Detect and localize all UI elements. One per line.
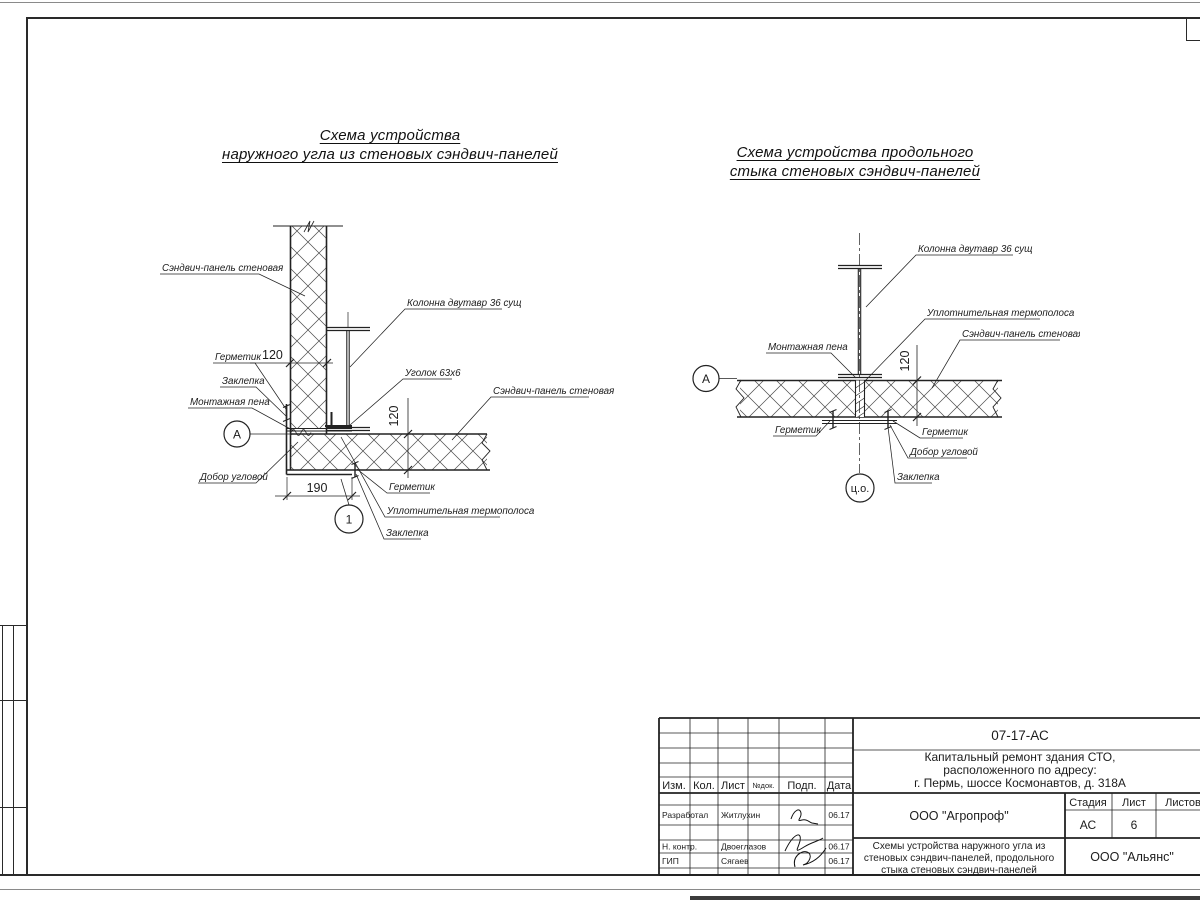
thermal-label: Уплотнительная термополоса [926,308,1075,319]
col-ndok: №док. [753,781,775,790]
thermal-label: Уплотнительная термополоса [386,506,535,517]
window-bottom-strip [690,896,1200,900]
title-block: Изм. Кол. Лист №док. Подп. Дата Разработ… [655,714,1200,880]
right-title-line2: стыка стеновых сэндвич-панелей [730,163,980,180]
org-design: ООО "Агропроф" [909,809,1008,823]
corner-trim-label: Добор угловой [909,447,978,458]
col-data: Дата [827,780,852,792]
wall-panel-vertical [273,221,343,470]
node-marker-a-text: А [233,428,241,442]
project-line3: г. Пермь, шоссе Космонавтов, д. 318А [914,776,1126,790]
row-role: Разработал [662,810,708,820]
signatures [785,810,826,867]
attachment-column-divider [0,700,26,701]
org-customer: ООО "Альянс" [1090,850,1174,864]
col-izm: Изм. [662,780,686,792]
left-diagram-title: Схема устройства наружного угла из стено… [140,126,640,164]
angle-label: Уголок 63х6 [404,368,461,379]
right-title-line1: Схема устройства продольного [737,144,974,161]
panel-label: Сэндвич-панель стеновая [962,329,1080,340]
corner-trim-label: Добор угловой [199,472,268,483]
stage-header: Стадия [1069,797,1107,809]
sealant-left-label: Герметик [775,425,821,436]
dim-text: 120 [387,406,401,427]
sealant-right-label: Герметик [922,427,968,438]
drawing-sheet: Схема устройства наружного угла из стено… [0,0,1200,900]
rivet-label: Заклепка [897,472,940,483]
row-name: Двоеглазов [721,842,767,852]
wall-panel [736,380,1002,417]
frame-top [26,17,1200,19]
row-name: Сягаев [721,856,749,866]
column-label: Колонна двутавр 36 сущ [407,298,521,309]
node-marker-a-text: А [702,372,710,386]
sheet-outer-top-edge [0,2,1200,3]
row-date: 06.17 [828,842,850,852]
foam-label: Монтажная пена [190,397,270,408]
panel-joint [856,381,865,418]
dim-text: 120 [898,351,912,372]
row-date: 06.17 [828,810,850,820]
top-right-corner-box [1186,18,1200,41]
sheet-outer-bottom-edge [0,889,1200,890]
center-axis-marker: ц.о. [846,474,874,502]
attachment-column-line [13,625,14,875]
rivet-label: Заклепка [222,376,265,387]
sealant2-label: Герметик [389,482,435,493]
sheet-name-line1: Схемы устройства наружного угла из [873,841,1046,852]
node-marker-a: А [693,366,719,392]
sheet-name-line2: стеновых сэндвич-панелей, продольного [864,853,1055,864]
frame-left [26,17,28,876]
col-kol: Кол. [693,780,715,792]
foam-label: Монтажная пена [768,342,848,353]
dimension-190: 190 [275,477,360,500]
right-diagram-title: Схема устройства продольного стыка стено… [655,143,1055,181]
detail-marker-1: 1 [335,505,363,533]
left-title-line1: Схема устройства [320,127,461,144]
attachment-column-divider [0,807,26,808]
rivet2-label: Заклепка [386,528,429,539]
left-title-line2: наружного угла из стеновых сэндвич-панел… [222,146,558,163]
sheets-header: Листов [1165,797,1200,809]
panel-label: Сэндвич-панель стеновая [162,263,284,274]
panel-right-label: Сэндвич-панель стеновая [493,386,615,397]
doc-number: 07-17-АС [991,728,1049,743]
sheet-name-line3: стыка стеновых сэндвич-панелей [881,865,1037,876]
corner-detail-drawing: 120 120 190 Сэндвич [130,200,650,560]
row-role: ГИП [662,856,679,866]
row-role: Н. контр. [662,842,697,852]
joint-detail-drawing: 120 Колонна двутавр 36 сущ Уплотнительна… [660,225,1080,515]
detail-marker-1-text: 1 [346,513,353,527]
row-name: Житлухин [721,810,761,820]
node-marker-a: А [224,421,250,447]
signature-2 [785,835,823,851]
sealant-label: Герметик [215,352,261,363]
col-podp: Подп. [787,780,816,792]
attachment-column-divider [0,625,26,626]
column-label: Колонна двутавр 36 сущ [918,244,1032,255]
center-axis-text: ц.о. [851,483,870,495]
attachment-column-line [2,625,3,875]
wall-panel-horizontal [287,434,490,470]
project-line2: расположенного по адресу: [943,763,1097,777]
sheet-value: 6 [1131,818,1138,832]
col-list: Лист [721,780,745,792]
signature-3 [794,848,826,867]
leader-lines [719,255,1060,483]
row-date: 06.17 [828,856,850,866]
dim-text: 120 [262,348,283,362]
project-line1: Капитальный ремонт здания СТО, [925,750,1116,764]
stage-value: АС [1080,818,1097,832]
sheet-header: Лист [1122,797,1146,809]
column-ibeam-profile [325,312,370,431]
dim-text: 190 [307,481,328,495]
column-ibeam-profile [838,233,882,473]
signature-1 [791,810,818,824]
